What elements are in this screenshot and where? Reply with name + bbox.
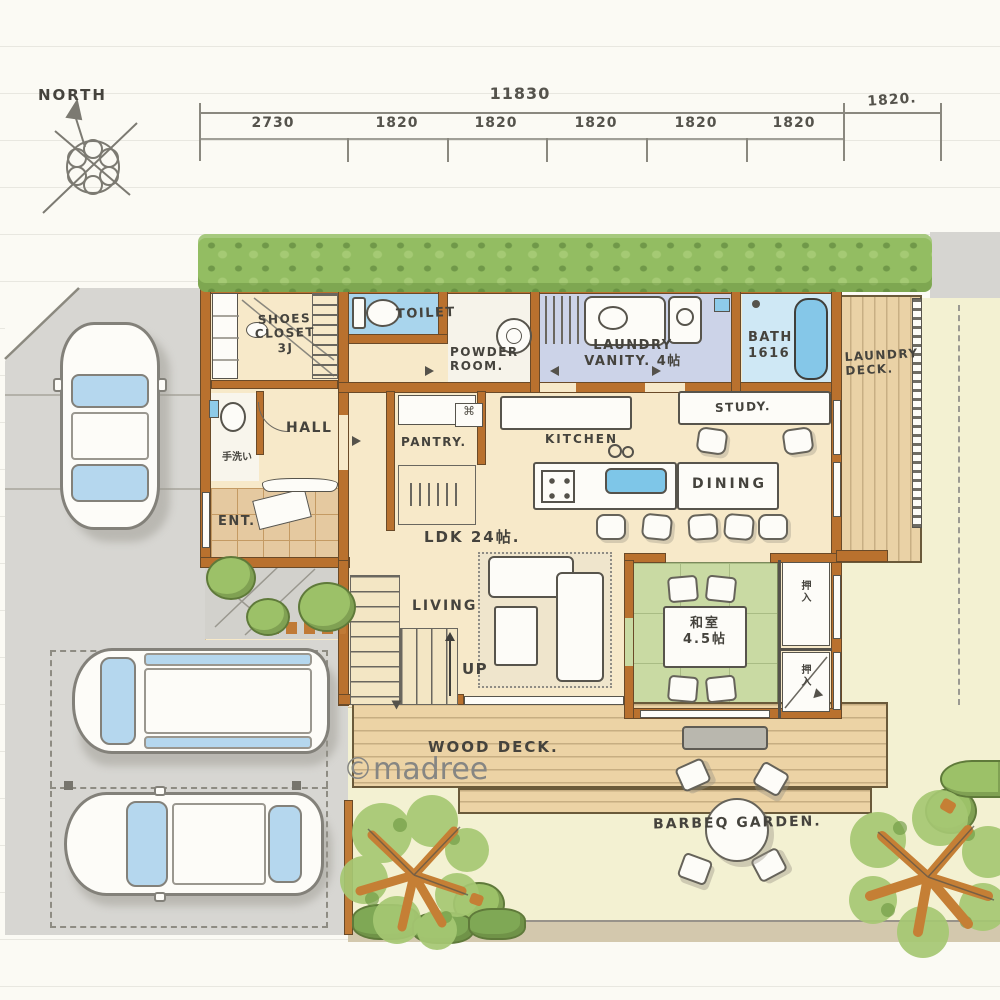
floor-cushion [667, 575, 699, 604]
window [833, 400, 841, 455]
dim-tick [347, 138, 349, 162]
sedan-mirror [154, 892, 166, 902]
floor-cushion [705, 575, 738, 604]
dim-seg-5: 1820 [656, 115, 736, 131]
shower-drain [752, 300, 760, 308]
stairs-flight-left [350, 575, 400, 705]
door-marker [352, 436, 361, 446]
wall-bath-west [731, 282, 741, 393]
compass-rose-icon [25, 95, 145, 215]
car-mirror [157, 378, 167, 392]
dim-seg-3: 1820 [456, 115, 536, 131]
approach-shrub [298, 582, 356, 632]
garden-bench [682, 726, 768, 750]
approach-shrub [206, 556, 256, 600]
door-marker [392, 701, 402, 710]
label-hand-wash: 手洗い [222, 452, 252, 464]
closet-upper-box [782, 562, 830, 646]
stool [641, 513, 674, 542]
label-up: UP [462, 660, 488, 678]
toilet-tank [352, 297, 366, 329]
label-toilet: TOILET [396, 305, 456, 323]
powder-sink-drain [506, 328, 522, 344]
door-marker [550, 366, 559, 376]
label-living: LIVING [412, 598, 477, 615]
toilet-bowl [366, 299, 400, 327]
window [833, 575, 841, 639]
stove [541, 470, 575, 503]
pantry-closet-rod [398, 465, 476, 525]
label-bath: BATH 1616 [748, 330, 793, 361]
laundry-hanger-rod [545, 296, 579, 344]
dim-right: 1820. [852, 89, 933, 111]
sedan-roof [172, 803, 266, 885]
wall-pantry-west [386, 391, 395, 531]
van-windshield [100, 657, 136, 745]
label-bbq-garden: BARBEQ GARDEN. [653, 814, 822, 834]
stool [596, 514, 626, 540]
wall-toilet-south [348, 334, 448, 344]
van-roof [144, 668, 312, 734]
sedan-rear-window [268, 805, 302, 883]
bathtub [794, 298, 828, 380]
vanity-basin [598, 306, 628, 330]
floor-cushion [667, 675, 699, 704]
watermark: ©madree [343, 752, 488, 787]
label-kitchen: KITCHEN [545, 432, 618, 446]
label-closet-upper: 押入 [798, 580, 810, 604]
study-chair [695, 426, 728, 456]
dim-tick [746, 138, 748, 162]
wall-closet-hall [211, 380, 338, 389]
car-mirror [53, 378, 63, 392]
road-patch-topright [930, 232, 1000, 298]
dim-line-lower [200, 138, 845, 140]
car-roof [71, 412, 149, 460]
label-study: STUDY. [715, 399, 771, 415]
dim-tick [199, 103, 201, 161]
sedan-mirror [154, 786, 166, 796]
washing-machine-drum [676, 308, 694, 326]
dim-tick [940, 103, 942, 161]
floor-plan-canvas: NORTH 11830 2730 1820 1820 1820 1820 182… [0, 0, 1000, 1000]
car-top [60, 322, 162, 536]
stairs-arrow-line [449, 640, 451, 696]
label-ldk: LDK 24帖. [424, 528, 520, 546]
window [833, 652, 841, 710]
kitchen-back-counter [500, 396, 632, 430]
dining-chair [758, 514, 788, 540]
car-rear-window [71, 464, 149, 502]
window-tatami-south [640, 710, 770, 718]
entrance-door [202, 492, 210, 548]
dining-chair [723, 513, 755, 542]
wood-deck-step [458, 788, 872, 814]
deck-corner-wall [836, 550, 888, 562]
sedan-windshield [126, 801, 168, 887]
label-japanese-room: 和室 4.5帖 [668, 616, 742, 647]
laundry-sink [714, 298, 730, 312]
van-side-window [144, 736, 312, 749]
label-laundry-deck: LAUNDRY DECK. [844, 346, 919, 379]
dim-seg-6: 1820 [754, 115, 834, 131]
living-table [494, 606, 538, 666]
property-line-dashed [958, 305, 960, 705]
van-side-window [144, 653, 312, 666]
door-marker [425, 366, 434, 376]
dim-total: 11830 [470, 84, 570, 103]
parking-stall-divider [50, 787, 328, 789]
label-pantry: PANTRY. [401, 435, 467, 449]
kitchen-sink [605, 468, 667, 494]
closet-divider [778, 560, 781, 718]
dim-tick [646, 138, 648, 162]
sliding-door-living [464, 696, 624, 705]
decor-niche: ⌘ [455, 403, 483, 427]
laundry-deck-floor [836, 295, 922, 563]
stairs-arrow-head [445, 632, 455, 641]
opening-vanity [540, 383, 576, 392]
label-laundry-vanity: LAUNDRY VANITY. 4帖 [568, 338, 698, 369]
parking-post [292, 781, 301, 790]
dim-tick [447, 138, 449, 162]
dim-line-upper [200, 112, 845, 114]
floor-cushion [705, 675, 738, 704]
parking-post [64, 781, 73, 790]
dim-seg-1: 2730 [233, 115, 313, 131]
opening-hall-ldk [339, 415, 348, 470]
label-closet-lower: 押入 [798, 664, 810, 688]
entry-step [262, 478, 338, 492]
hedge [198, 234, 932, 292]
garden-tree-left [342, 795, 492, 955]
label-entrance: ENT. [218, 514, 256, 530]
dim-seg-4: 1820 [556, 115, 636, 131]
window [833, 462, 841, 517]
north-label: NORTH [38, 86, 107, 104]
study-chair [781, 426, 814, 456]
faucet [622, 446, 634, 458]
label-shoes-closet: SHOES CLOSET 3J [241, 311, 328, 357]
wc-toilet-bowl [220, 402, 246, 432]
label-hall: HALL [286, 420, 332, 437]
shoe-shelf [212, 293, 238, 379]
label-powder-room: POWDER ROOM. [450, 345, 519, 374]
van [72, 648, 334, 758]
dining-chair [687, 513, 719, 541]
dim-tick [546, 138, 548, 162]
deck-fence [912, 298, 922, 528]
wall-wc-east [256, 391, 264, 455]
opening-living-tatami [625, 618, 633, 666]
garden-tree-right [848, 792, 1000, 957]
sedan [64, 792, 328, 900]
sofa-side [556, 572, 604, 682]
dim-seg-2: 1820 [357, 115, 437, 131]
dim-line-right [845, 112, 942, 114]
label-dining: DINING [692, 476, 767, 493]
closet-divider [778, 648, 832, 651]
car-windshield [71, 374, 149, 408]
approach-shrub [246, 598, 290, 636]
wc-hand-sink [209, 400, 219, 418]
